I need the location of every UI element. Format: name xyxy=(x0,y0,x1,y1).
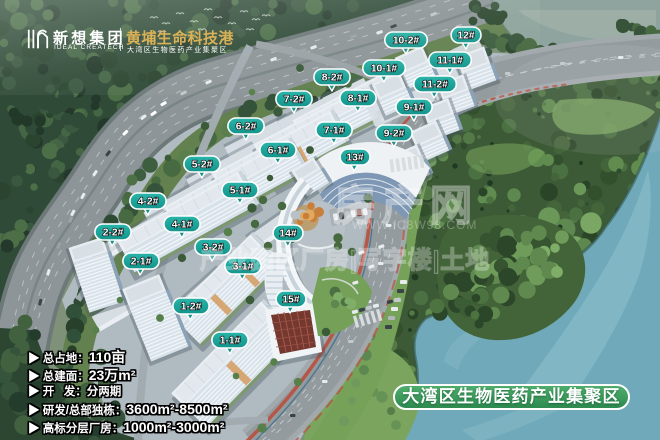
svg-text:6-2#: 6-2# xyxy=(236,122,257,133)
svg-text:5-2#: 5-2# xyxy=(192,160,213,171)
svg-text:1-2#: 1-2# xyxy=(181,302,202,313)
svg-text:15#: 15# xyxy=(282,295,299,306)
svg-text:13#: 13# xyxy=(346,153,363,164)
svg-text:1-1#: 1-1# xyxy=(220,336,241,347)
svg-text:2-1#: 2-1# xyxy=(131,257,152,268)
svg-text:4-1#: 4-1# xyxy=(172,220,193,231)
svg-text:7-1#: 7-1# xyxy=(324,126,345,137)
svg-text:8-1#: 8-1# xyxy=(348,94,369,105)
svg-text:5-1#: 5-1# xyxy=(230,186,251,197)
svg-text:9-2#: 9-2# xyxy=(384,129,405,140)
svg-text:7-2#: 7-2# xyxy=(284,95,305,106)
svg-text:2-2#: 2-2# xyxy=(103,228,124,239)
svg-text:9-1#: 9-1# xyxy=(404,103,425,114)
svg-text:4-2#: 4-2# xyxy=(138,197,159,208)
svg-text:14#: 14# xyxy=(279,229,296,240)
svg-text:6-1#: 6-1# xyxy=(268,146,289,157)
